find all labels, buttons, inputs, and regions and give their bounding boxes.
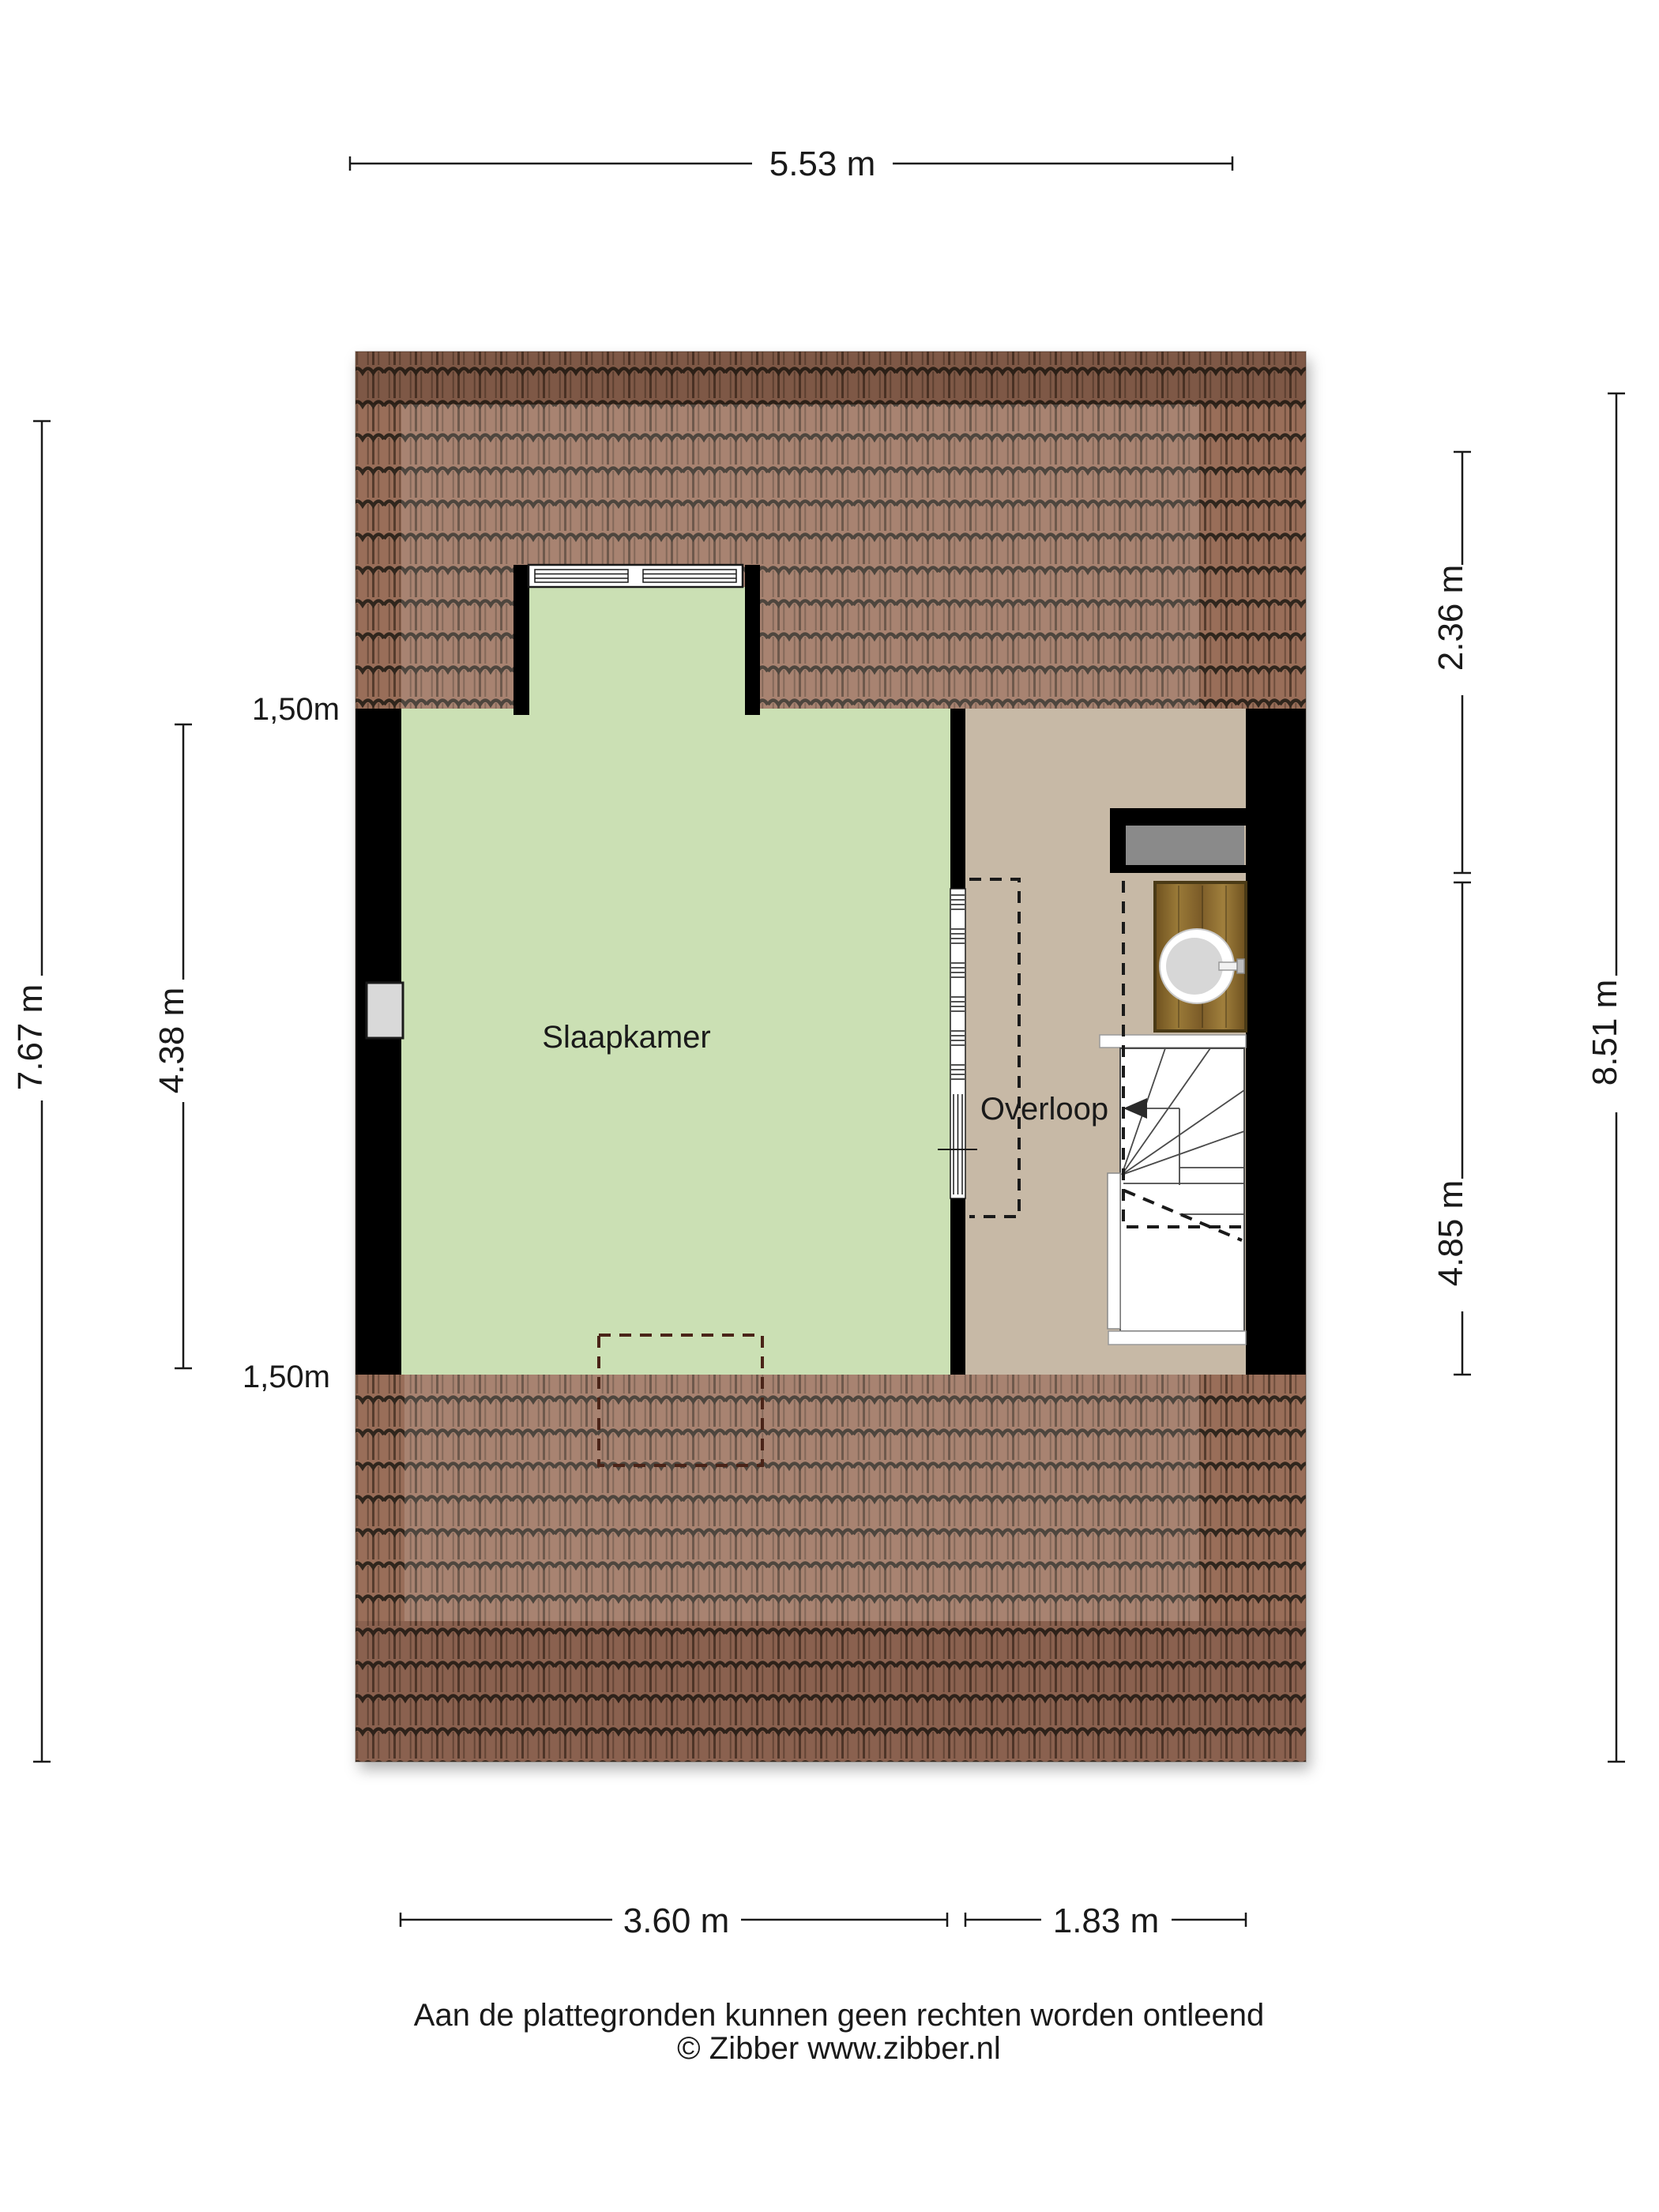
stair-banister: [1108, 1173, 1120, 1329]
ceiling-label-bottom: 1,50m: [243, 1360, 330, 1394]
dim-bottom-right: 1.83 m: [1053, 1902, 1160, 1940]
wall-middle-lower: [950, 1198, 965, 1375]
wall-right: [1246, 709, 1306, 1375]
dormer-jamb-left: [513, 565, 529, 715]
bedroom-dormer-recess: [529, 587, 745, 709]
room-label-landing: Overloop: [980, 1092, 1108, 1127]
dim-left-inner: 4.38 m: [152, 987, 191, 1094]
wall-middle-upper: [950, 709, 965, 889]
stair-bottom-edge: [1108, 1331, 1246, 1345]
dim-top-width: 5.53 m: [769, 145, 876, 183]
dim-right-inner: 4.85 m: [1431, 1180, 1470, 1287]
dim-right-top: 2.36 m: [1431, 565, 1470, 671]
sink-cabinet: [1155, 882, 1246, 1031]
floorplan-page: 5.53 m 7.67 m 4.38 m 2.36 m 4.85 m 8.51 …: [0, 0, 1659, 2212]
left-wall-niche: [367, 983, 403, 1038]
wall-left: [355, 709, 401, 1375]
dormer-window: [529, 565, 743, 587]
dim-left-outer: 7.67 m: [11, 984, 50, 1091]
stair-well: [1120, 1048, 1244, 1331]
dim-bottom-left: 3.60 m: [623, 1902, 730, 1940]
roof-top-band: [355, 352, 1306, 709]
room-label-bedroom: Slaapkamer: [542, 1020, 710, 1055]
roof-bottom-band: [355, 1375, 1306, 1762]
footer-copyright: © Zibber www.zibber.nl: [677, 2031, 1001, 2066]
dim-right-outer: 8.51 m: [1586, 980, 1624, 1086]
sink-faucet: [1219, 962, 1240, 970]
ceiling-label-top: 1,50m: [252, 692, 340, 727]
skylight-window: [1110, 808, 1246, 873]
footer-disclaimer: Aan de plattegronden kunnen geen rechten…: [414, 1998, 1264, 2033]
staircase: [1100, 1035, 1246, 1345]
dormer-jamb-right: [745, 565, 760, 715]
floorplan-canvas: 5.53 m 7.67 m 4.38 m 2.36 m 4.85 m 8.51 …: [0, 0, 1659, 2212]
stair-top-landing-edge: [1100, 1035, 1246, 1048]
